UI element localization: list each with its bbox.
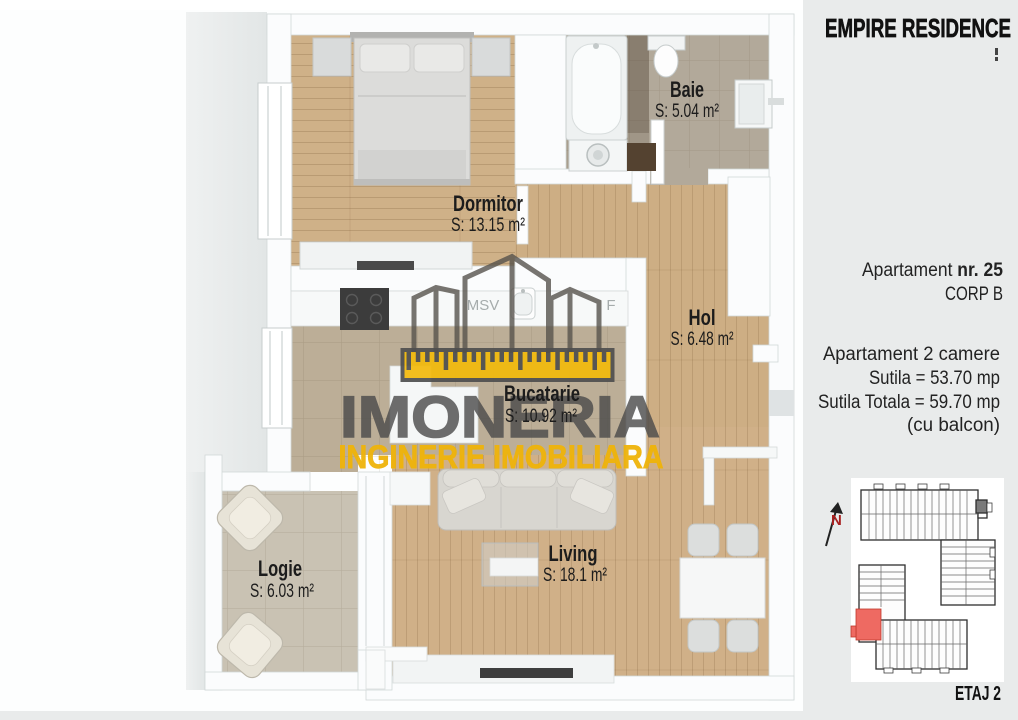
svg-text:F: F bbox=[606, 297, 615, 314]
svg-text:ETAJ 2: ETAJ 2 bbox=[955, 683, 1001, 705]
svg-text:S: 13.15 m²: S: 13.15 m² bbox=[451, 215, 525, 236]
svg-text:Hol: Hol bbox=[689, 305, 716, 330]
svg-text:Sutila = 53.70 mp: Sutila = 53.70 mp bbox=[869, 368, 1000, 389]
svg-text:Living: Living bbox=[549, 541, 598, 566]
svg-text:INGINERIE IMOBILIARA: INGINERIE IMOBILIARA bbox=[339, 439, 664, 475]
svg-text:Dormitor: Dormitor bbox=[453, 191, 523, 216]
svg-text:EMPIRE RESIDENCE: EMPIRE RESIDENCE bbox=[825, 13, 1011, 43]
svg-text:S: 5.04 m²: S: 5.04 m² bbox=[655, 101, 719, 122]
svg-text:Bucatarie: Bucatarie bbox=[504, 381, 580, 406]
svg-text:(cu balcon): (cu balcon) bbox=[907, 415, 1000, 436]
svg-text:Logie: Logie bbox=[258, 556, 302, 581]
svg-text:N: N bbox=[831, 512, 842, 529]
svg-text:CORP B: CORP B bbox=[945, 284, 1003, 305]
svg-text:Apartament nr. 25: Apartament nr. 25 bbox=[862, 260, 1003, 281]
svg-text:MSV: MSV bbox=[467, 297, 500, 314]
svg-text:Sutila Totala = 59.70 mp: Sutila Totala = 59.70 mp bbox=[818, 392, 1000, 413]
svg-text:Apartament 2 camere: Apartament 2 camere bbox=[823, 344, 1000, 365]
svg-text:S: 6.03 m²: S: 6.03 m² bbox=[250, 581, 314, 602]
svg-text:S: 18.1 m²: S: 18.1 m² bbox=[543, 565, 607, 586]
svg-text:Baie: Baie bbox=[670, 77, 704, 102]
svg-text:S: 6.48 m²: S: 6.48 m² bbox=[671, 329, 734, 350]
svg-text:S: 10.92 m²: S: 10.92 m² bbox=[505, 406, 577, 427]
